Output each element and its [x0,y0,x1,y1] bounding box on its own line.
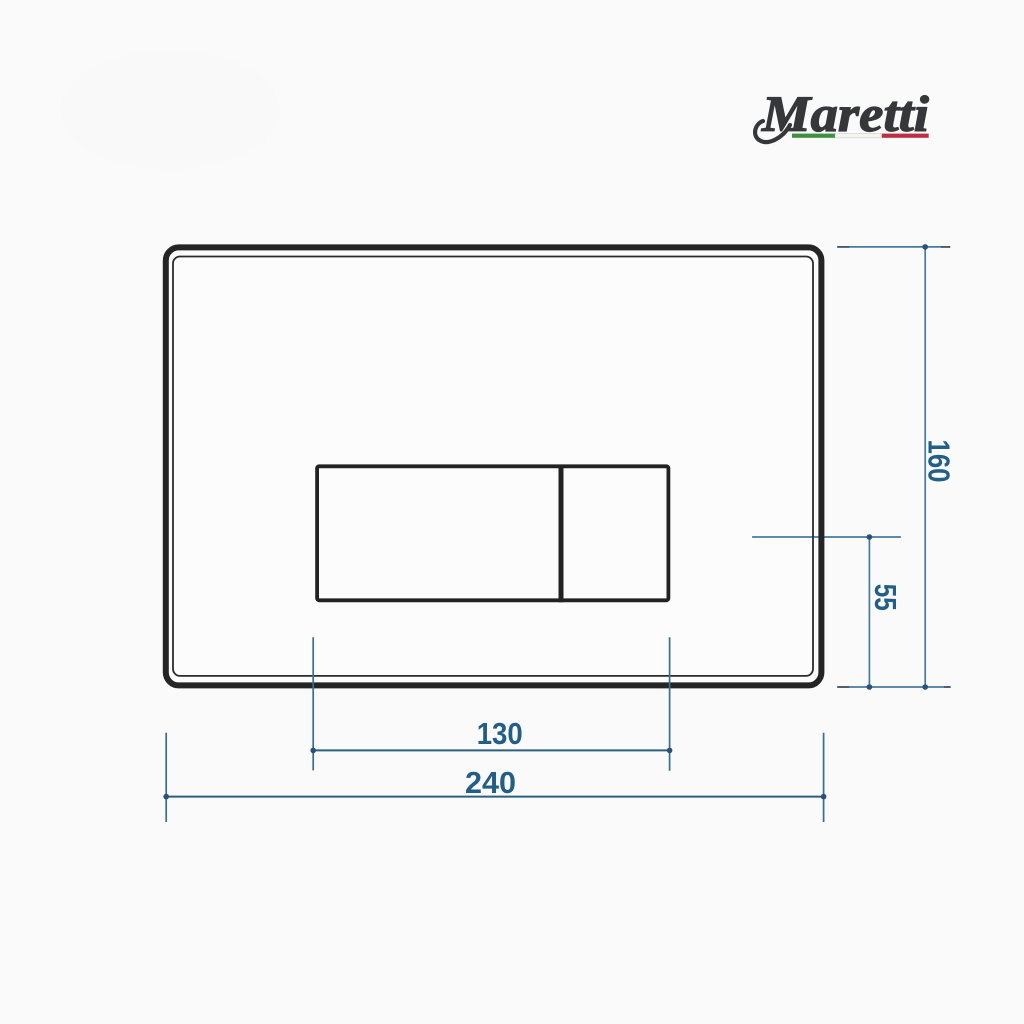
svg-text:55: 55 [868,584,903,611]
svg-text:240: 240 [465,765,516,800]
svg-text:130: 130 [477,716,523,751]
svg-text:160: 160 [922,440,957,483]
